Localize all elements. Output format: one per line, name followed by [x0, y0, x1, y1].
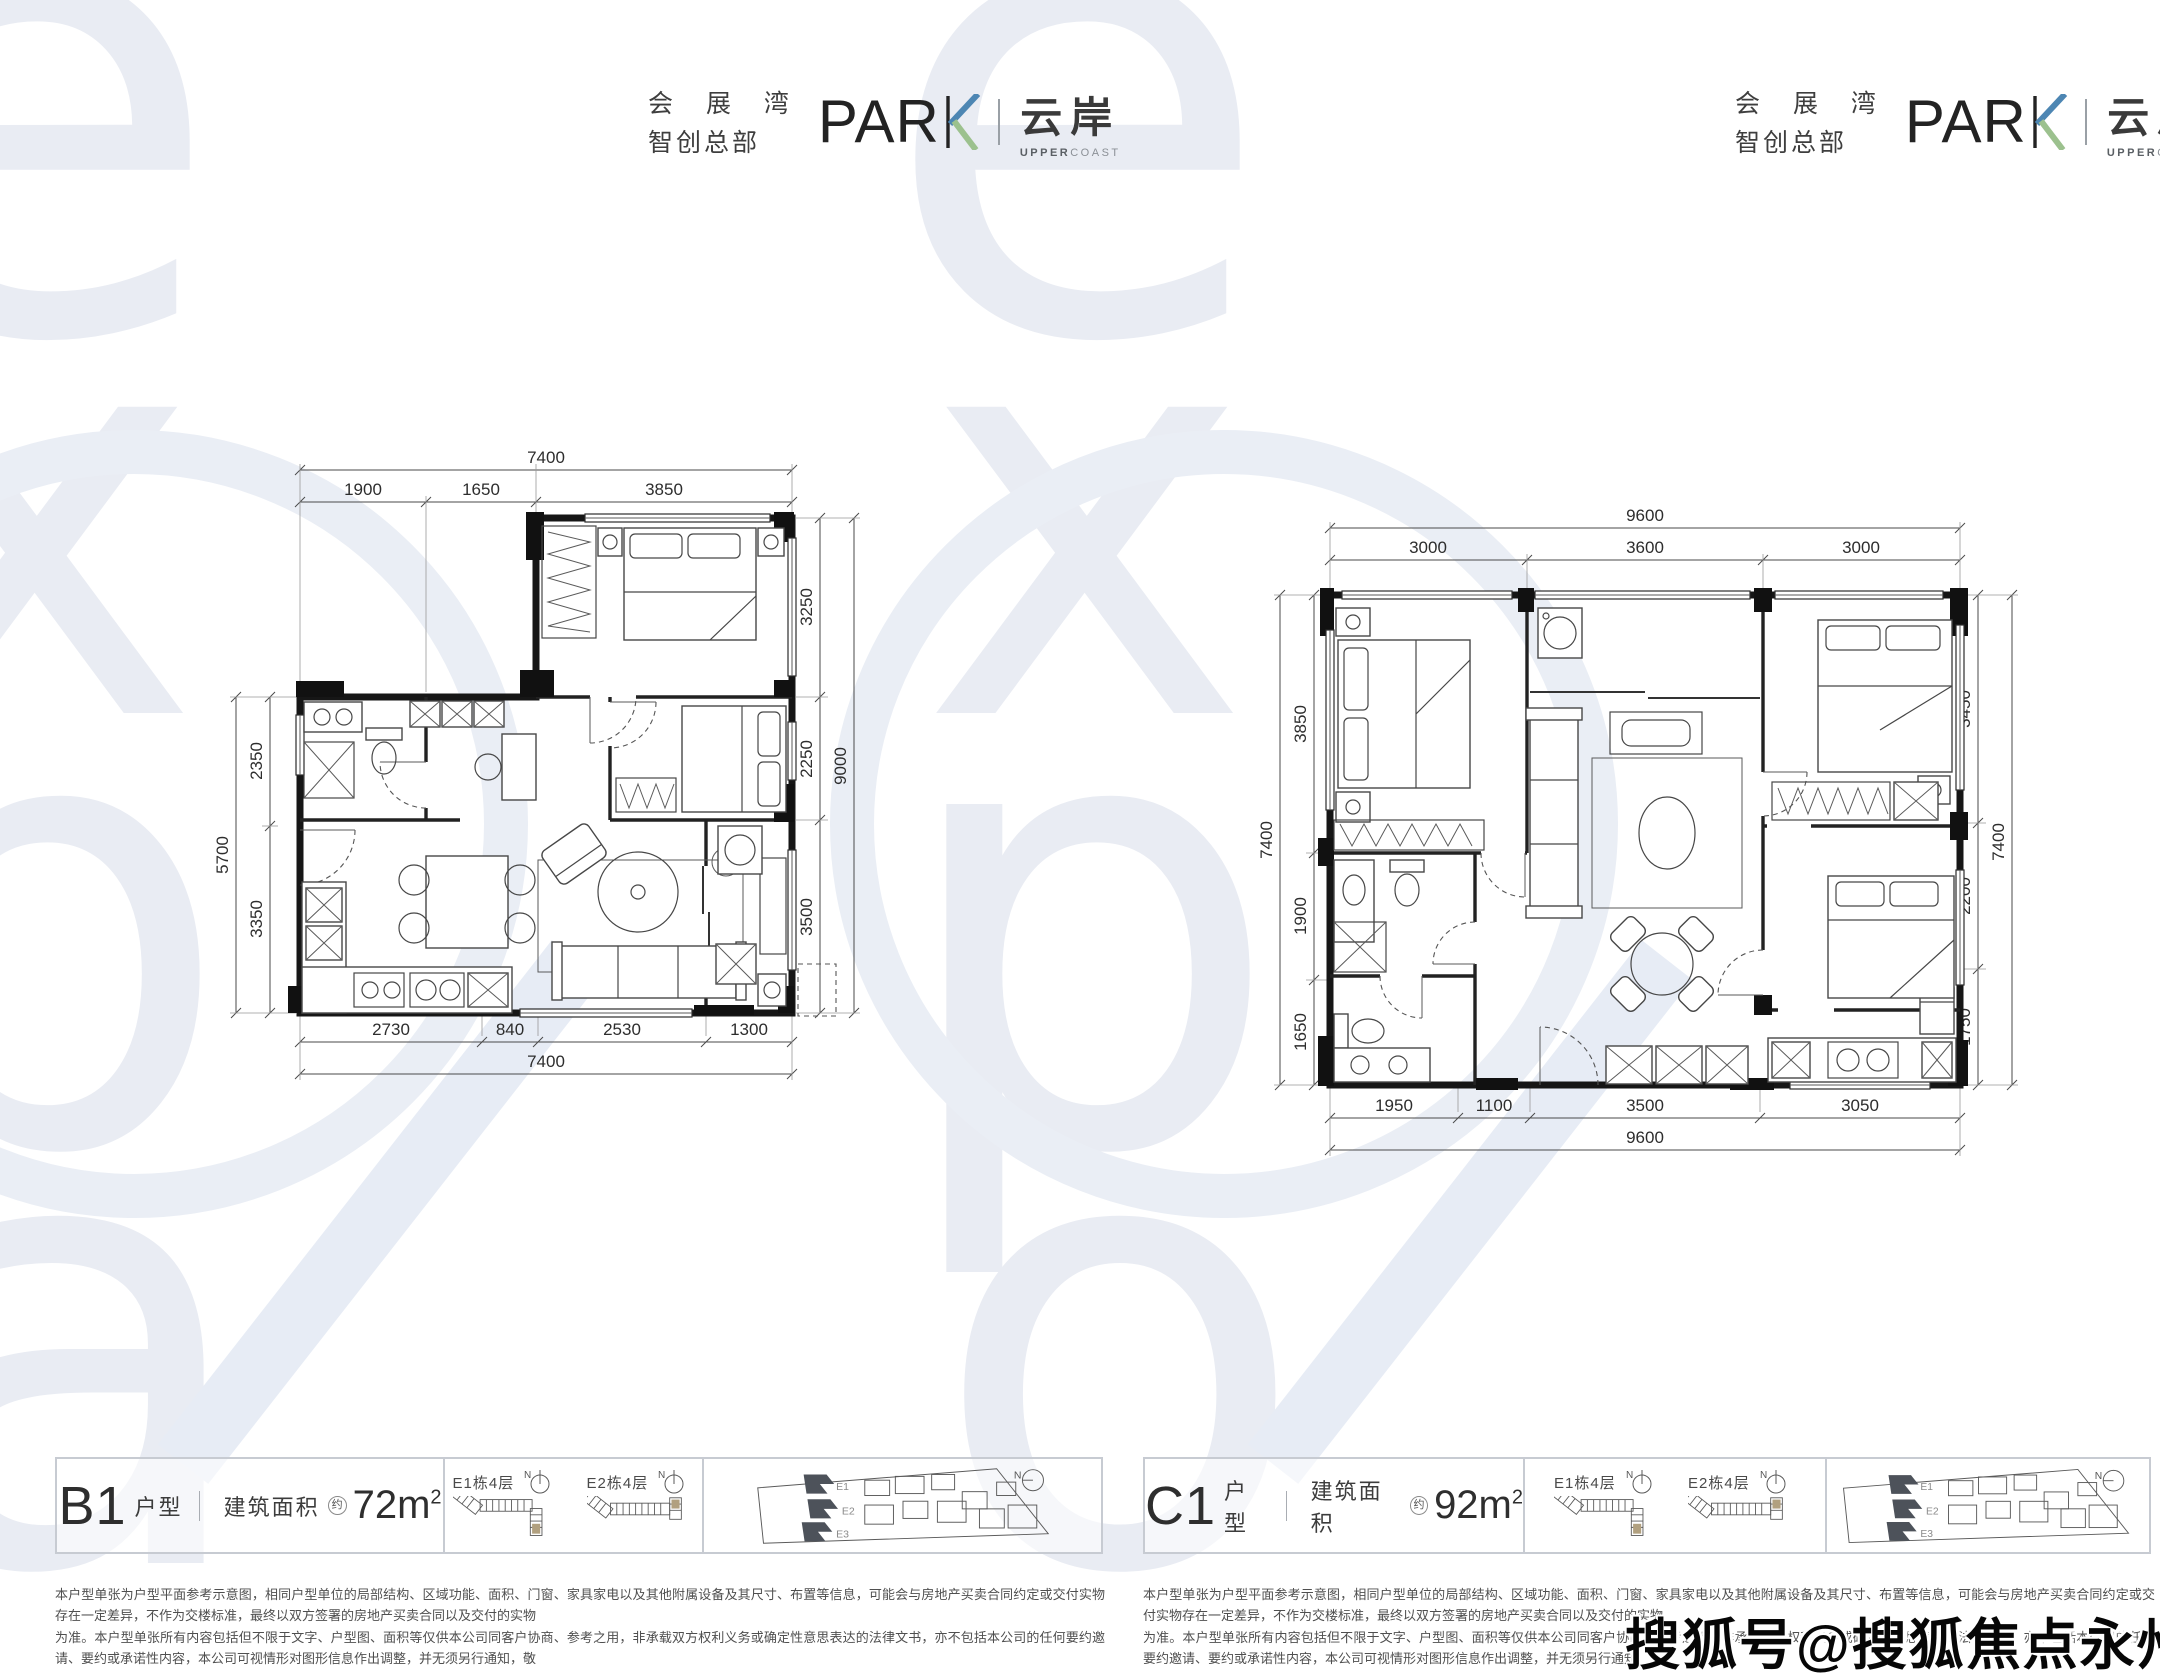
area-value: 92m2: [1434, 1483, 1523, 1528]
north-compass-icon: N: [1758, 1468, 1788, 1496]
unit-code: C1: [1145, 1475, 1216, 1537]
logo-park-wordmark: PAR: [1905, 87, 2069, 156]
svg-text:1650: 1650: [462, 480, 500, 499]
svg-text:9600: 9600: [1626, 506, 1664, 525]
svg-text:5700: 5700: [213, 836, 232, 874]
svg-text:7400: 7400: [1989, 823, 2008, 861]
site-map-b1: E1 E2 E3 N: [704, 1459, 1101, 1552]
svg-text:3000: 3000: [1409, 538, 1447, 557]
divider: [199, 1491, 200, 1521]
logo-chinese-name: 会 展 湾 智创总部: [1735, 84, 1889, 159]
site-plan: E1 E2 E3 N: [713, 1463, 1093, 1549]
c1-furniture: [1334, 608, 1956, 1084]
svg-text:N: N: [1626, 1470, 1633, 1481]
logo-brand: 云岸 UPPERCOAST: [1020, 84, 1121, 159]
divider: [1286, 1491, 1287, 1521]
c1-doors: [1380, 772, 1807, 1085]
leaflet-page: e x p a e x p o 会 展 湾 智创总部 PAR 云岸 UPPERC…: [0, 0, 2160, 1673]
north-compass-icon: N: [522, 1468, 552, 1496]
logo-brand: 云岸 UPPERCOAST: [2107, 84, 2160, 159]
area-label: 建筑面积: [224, 1490, 320, 1522]
svg-text:3850: 3850: [1291, 705, 1310, 743]
floorplan-c1: 9600 3000 3600 3000 3850 1900 1650 7400 …: [1230, 490, 2090, 1230]
svg-text:E2: E2: [1926, 1506, 1939, 1517]
svg-text:1900: 1900: [344, 480, 382, 499]
svg-text:1100: 1100: [1476, 1096, 1513, 1115]
disclaimer-b1: 本户型单张为户型平面参考示意图，相同户型单位的局部结构、区域功能、面积、门窗、家…: [55, 1584, 1105, 1673]
b1-furniture: [302, 526, 786, 1013]
mini-plan-e2: E2栋4层 N: [1688, 1468, 1796, 1553]
svg-text:E1: E1: [1920, 1482, 1933, 1493]
svg-text:9000: 9000: [831, 747, 850, 785]
north-compass-icon: N: [1624, 1468, 1654, 1496]
unit-title-b1: B1 户型 建筑面积 约 72m2: [57, 1459, 445, 1552]
logo-chinese-name: 会 展 湾 智创总部: [648, 84, 802, 159]
svg-text:1900: 1900: [1291, 897, 1310, 935]
area-value: 72m2: [353, 1483, 442, 1528]
svg-text:N: N: [1760, 1470, 1767, 1481]
building-footprint-e1: [453, 1496, 561, 1548]
svg-text:7400: 7400: [527, 448, 565, 467]
brand-logo: 会 展 湾 智创总部 PAR 云岸 UPPERCOAST: [1735, 84, 2160, 159]
mini-plan-e2: E2栋4层 N: [587, 1468, 695, 1553]
svg-text:N: N: [2095, 1470, 2102, 1481]
svg-text:3500: 3500: [797, 898, 816, 936]
mini-plan-e1: E1栋4层 N: [1554, 1468, 1662, 1553]
svg-text:7400: 7400: [1257, 821, 1276, 859]
logo-park-wordmark: PAR: [818, 87, 982, 156]
svg-text:E2: E2: [841, 1505, 854, 1517]
approx-icon: 约: [1410, 1496, 1428, 1515]
svg-text:1950: 1950: [1375, 1096, 1413, 1115]
unit-info-bar-c1: C1 户型 建筑面积 约 92m2 E1栋4层 N: [1143, 1457, 2151, 1554]
building-footprint-e2: [587, 1496, 695, 1548]
svg-text:840: 840: [496, 1020, 524, 1039]
svg-text:2530: 2530: [603, 1020, 641, 1039]
svg-text:3000: 3000: [1842, 538, 1880, 557]
building-footprint-e1: [1554, 1496, 1662, 1548]
svg-text:3850: 3850: [645, 480, 683, 499]
site-map-c1: E1 E2 E3 N: [1827, 1459, 2145, 1552]
sohu-watermark: 搜狐号@搜狐焦点永州站: [1625, 1600, 2160, 1673]
svg-text:E1: E1: [836, 1480, 849, 1492]
unit-info-bar-b1: B1 户型 建筑面积 约 72m2 E1栋4层 N: [55, 1457, 1103, 1554]
svg-text:2730: 2730: [372, 1020, 410, 1039]
floorplan-b1: 7400 1900 1650 3850 2350 3350 5700 3250 …: [170, 430, 950, 1310]
svg-text:1300: 1300: [730, 1020, 768, 1039]
approx-icon: 约: [328, 1496, 347, 1515]
building-key-b1: E1栋4层 N: [445, 1459, 704, 1552]
unit-title-c1: C1 户型 建筑面积 约 92m2: [1145, 1459, 1525, 1552]
svg-text:2250: 2250: [797, 740, 816, 778]
brand-logo: 会 展 湾 智创总部 PAR 云岸 UPPERCOAST: [648, 84, 1121, 159]
logo-divider: [2085, 99, 2087, 145]
svg-text:3050: 3050: [1841, 1096, 1879, 1115]
svg-text:9600: 9600: [1626, 1128, 1664, 1147]
site-plan: E1 E2 E3 N: [1836, 1463, 2136, 1549]
svg-text:E3: E3: [836, 1528, 849, 1540]
logo-divider: [998, 99, 1000, 145]
svg-text:7400: 7400: [527, 1052, 565, 1071]
north-compass-icon: N: [656, 1468, 686, 1496]
mini-plan-e1: E1栋4层 N: [453, 1468, 561, 1553]
svg-text:N: N: [524, 1470, 531, 1481]
svg-text:3600: 3600: [1626, 538, 1664, 557]
svg-text:3500: 3500: [1626, 1096, 1664, 1115]
svg-text:E3: E3: [1920, 1528, 1933, 1539]
svg-text:2350: 2350: [247, 742, 266, 780]
svg-text:3250: 3250: [797, 588, 816, 626]
unit-type-label: 户型: [135, 1490, 183, 1522]
park-k-icon: [942, 94, 982, 150]
building-footprint-e2: [1688, 1496, 1796, 1548]
park-k-icon: [2029, 94, 2069, 150]
svg-text:N: N: [658, 1470, 665, 1481]
area-label: 建筑面积: [1311, 1474, 1402, 1538]
svg-text:N: N: [1013, 1469, 1021, 1481]
svg-text:3350: 3350: [247, 900, 266, 938]
building-key-c1: E1栋4层 N: [1525, 1459, 1827, 1552]
svg-text:1650: 1650: [1291, 1013, 1310, 1051]
unit-code: B1: [58, 1475, 126, 1537]
unit-type-label: 户型: [1224, 1474, 1270, 1538]
